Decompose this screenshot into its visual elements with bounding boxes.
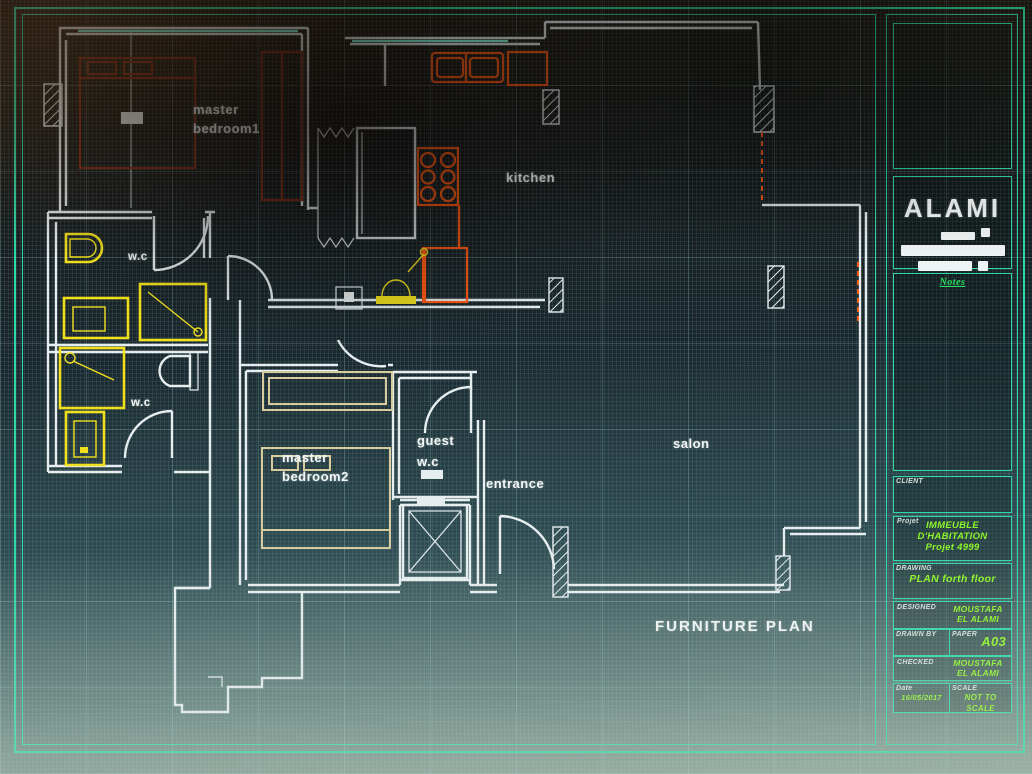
designed-box: DESIGNED MOUSTAFA EL ALAMI: [893, 601, 1012, 629]
date-cell: Date 16/05/2017: [894, 684, 949, 712]
checked-value: MOUSTAFA EL ALAMI: [947, 659, 1009, 678]
scale-label: SCALE: [950, 684, 1011, 692]
bedroom1-furniture: [80, 52, 302, 200]
drawing-title-box: DRAWING PLAN forth floor: [893, 563, 1012, 599]
drawn-paper-row: DRAWN BY PAPER A03: [893, 629, 1012, 656]
elevator-shaft: [403, 505, 467, 578]
title-block-empty-box: [893, 23, 1012, 169]
kitchen-fixtures: [418, 52, 858, 322]
window-glass-lines: [78, 31, 508, 41]
client-box: CLIENT: [893, 476, 1012, 513]
wc1-shower: [140, 284, 206, 340]
wc2-washer: [66, 412, 104, 465]
room-label-master-bedroom1: master bedroom1: [193, 100, 260, 138]
floor-plan-canvas[interactable]: [0, 0, 1032, 774]
wc2-shower: [60, 348, 124, 408]
project-label: Projet: [895, 517, 919, 525]
room-label-entrance: entrance: [486, 474, 544, 493]
room-label-kitchen: kitchen: [506, 168, 555, 187]
date-label: Date: [894, 684, 949, 692]
door-arcs: [125, 216, 554, 574]
drawing-label: DRAWING: [894, 564, 1011, 572]
scale-cell: SCALE NOT TO SCALE: [949, 684, 1011, 712]
paper-cell: PAPER A03: [949, 630, 1011, 655]
notes-box: Notes: [893, 273, 1012, 471]
room-label-wc-lower: w.c: [131, 394, 151, 413]
date-value: 16/05/2017: [894, 692, 949, 703]
walls: [48, 22, 866, 712]
duct-shaft: [318, 128, 415, 247]
wc2-toilet-white: [160, 352, 198, 390]
room-label-salon: salon: [673, 434, 709, 453]
paper-label: PAPER: [950, 630, 1011, 638]
kitchen-oven: [423, 248, 467, 302]
kitchen-stove: [418, 148, 458, 205]
designed-value: MOUSTAFA EL ALAMI: [947, 605, 1009, 624]
checked-label: CHECKED: [895, 658, 934, 666]
checked-box: CHECKED MOUSTAFA EL ALAMI: [893, 656, 1012, 681]
drawing-value: PLAN forth floor: [894, 574, 1011, 585]
project-line3: Projet 4999: [894, 542, 1011, 553]
company-name: ALAMI: [894, 193, 1011, 224]
company-logo-icon: [894, 232, 1011, 271]
scale-value: NOT TO SCALE: [950, 692, 1011, 714]
kitchen-kettle-symbol: [376, 249, 428, 305]
client-label: CLIENT: [894, 477, 1011, 485]
drawn-by-label: DRAWN BY: [894, 630, 949, 638]
room-label-master-bedroom2: master bedroom2: [282, 448, 349, 486]
date-scale-row: Date 16/05/2017 SCALE NOT TO SCALE: [893, 683, 1012, 713]
bathroom-fixtures: [60, 234, 428, 465]
project-line2: D'HABITATION: [894, 531, 1011, 542]
balcony-outline: [175, 588, 302, 712]
project-box: Projet IMMEUBLE D'HABITATION Projet 4999: [893, 516, 1012, 561]
drawn-by-cell: DRAWN BY: [894, 630, 949, 655]
cad-screen-photo: master bedroom1 w.c w.c kitchen guest w.…: [0, 0, 1032, 774]
room-label-wc-upper: w.c: [128, 248, 148, 267]
plan-title: FURNITURE PLAN: [655, 617, 815, 636]
kitchen-fridge: [508, 52, 547, 85]
room-label-guest-wc: guest w.c: [417, 430, 454, 472]
title-block: ALAMI Notes CLIENT Projet IMMEUBLE D'HAB…: [886, 14, 1018, 745]
company-logo-box: ALAMI: [893, 176, 1012, 269]
notes-heading: Notes: [894, 277, 1011, 288]
designed-label: DESIGNED: [895, 603, 936, 611]
